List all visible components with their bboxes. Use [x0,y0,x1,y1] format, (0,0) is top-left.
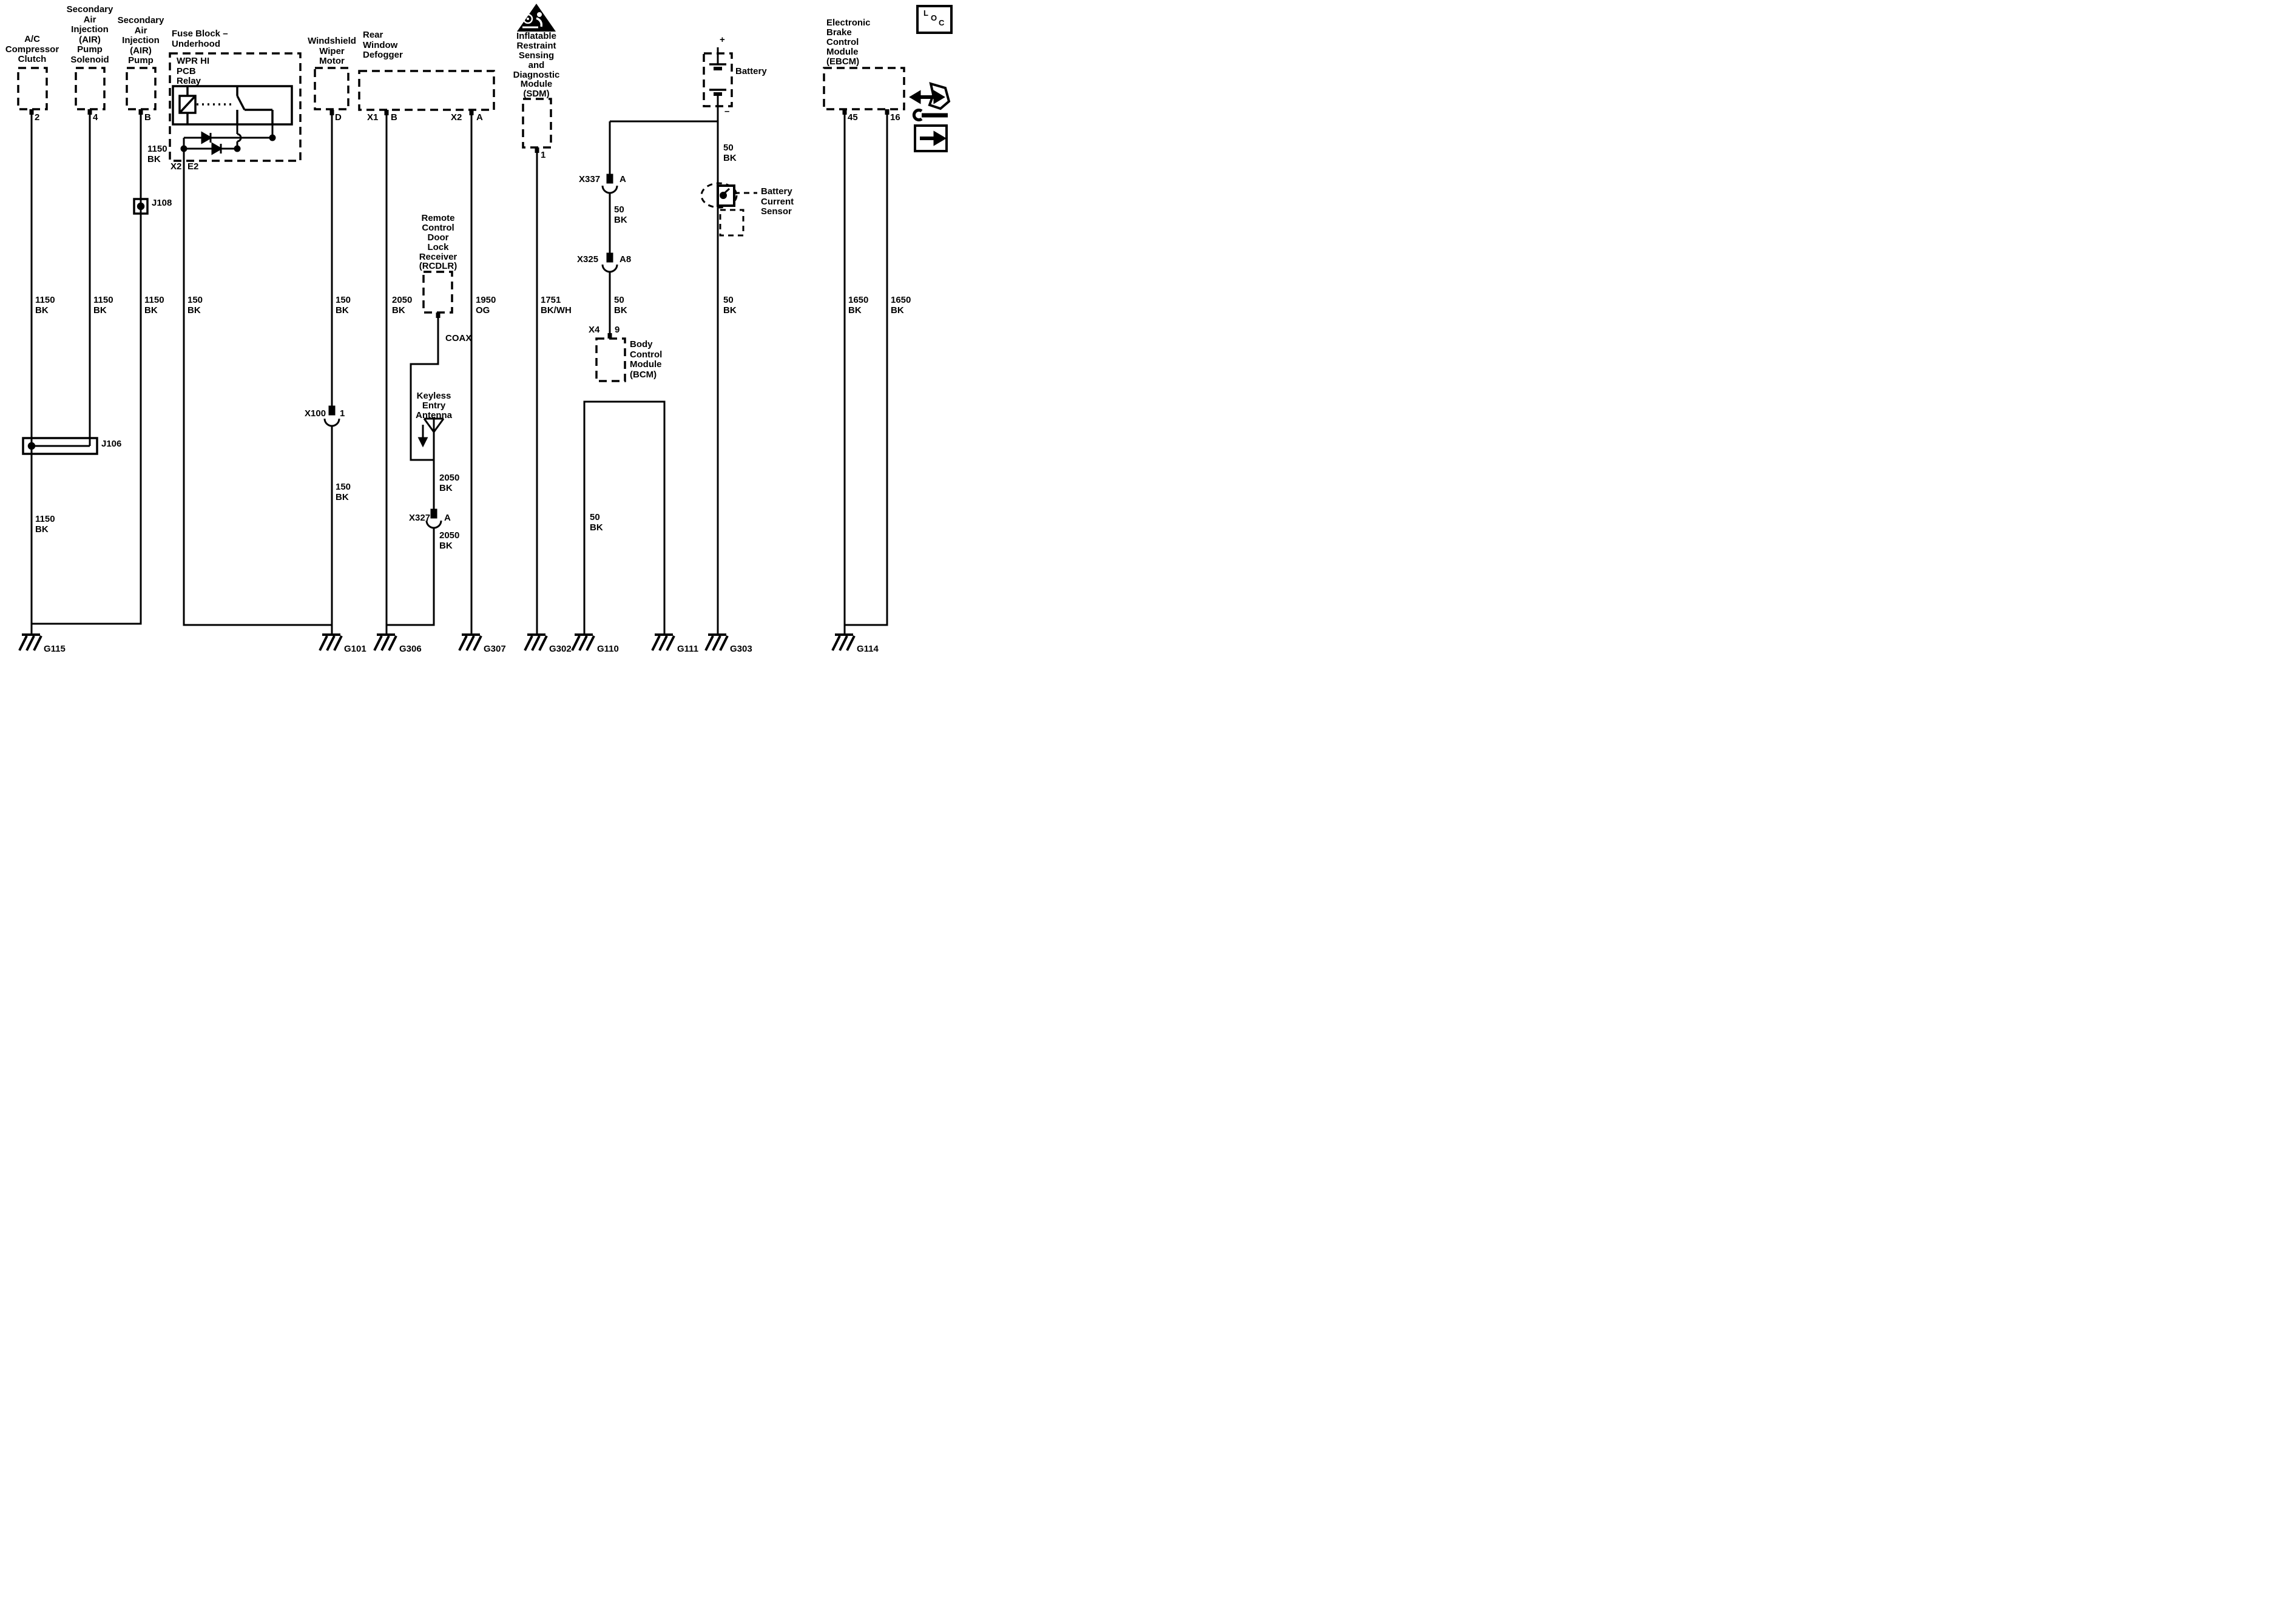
conn-defog-x1: X1 [367,113,378,123]
fuse-block-label: Fuse Block – Underhood [172,29,228,49]
wire-label-acc-1150bk-2: 1150 BK [35,515,55,535]
wire-fuseblock-150bk [184,149,332,625]
ground-label-g302: G302 [549,644,572,655]
wire-label-ant-2050bk: 2050 BK [439,473,459,493]
wire-label-bat-50bk-1: 50 BK [723,143,737,163]
pump-label: Secondary Air Injection (AIR) Pump [110,16,171,66]
box-wiper-motor [315,68,348,109]
ground-icon-g303 [706,635,728,650]
wire-label-bat-50bk-2: 50 BK [723,295,737,316]
wire-label-chain-50bk-2: 50 BK [614,295,627,316]
ground-icon-g114 [832,635,854,650]
connector-x337: X337 [579,175,600,185]
conn-defog-x2: X2 [451,113,462,123]
box-acc-compressor-clutch [18,68,47,109]
conn-fuse-x2: X2 [171,162,181,172]
wire-wiper-150bk [325,110,339,634]
ground-label-g303: G303 [730,644,752,655]
junction-j108-label: J108 [152,198,172,209]
bcm-label: Body Control Module (BCM) [630,340,662,380]
loc-icon: L O C [916,5,953,34]
connector-x100: X100 [305,409,326,419]
conn-bcm-x4: X4 [589,325,599,336]
wire-label-ebcm45-1650bk: 1650 BK [848,295,868,316]
diagram-canvas [0,0,951,670]
wire-label-fuse-150bk: 150 BK [187,295,203,316]
connector-x327: X327 [409,513,430,524]
wire-label-wiper-150bk: 150 BK [336,295,351,316]
ground-icon-g115 [19,635,41,650]
connector-x325: X325 [577,255,598,265]
ground-label-g115: G115 [44,644,66,655]
pin-defog-b: B [391,113,397,123]
pin-fuse-e2: E2 [187,162,198,172]
relay-output-network [181,124,275,154]
junction-j106 [23,438,97,454]
battery-minus: – [724,107,729,117]
acc-label: A/C Compressor Clutch [2,35,62,65]
wire-label-sdm-1751bkwh: 1751 BK/WH [541,295,572,316]
battery-symbol [709,47,726,106]
wire-label-coax: COAX [445,334,471,344]
pin-acc-2: 2 [35,113,39,123]
wire-label-acc-1150bk: 1150 BK [35,295,55,316]
pin-wiper-d: D [335,113,342,123]
pin-pump-b: B [144,113,151,123]
box-air-pump [127,68,155,109]
ground-icon-g111 [652,635,674,650]
box-bcm [596,339,625,381]
ground-icon-g307 [459,635,481,650]
connector-x325-pin: A8 [620,255,631,265]
continuation-arrow-icon [915,126,947,151]
wpr-hi-pcb-relay-symbol [173,86,292,124]
ground-symbols [19,635,854,650]
diode-icon [202,133,221,154]
battery-plus: + [720,35,725,46]
connector-x337-pin: A [620,175,626,185]
pin-defog-a: A [476,113,483,123]
wire-label-pump-1150bk-top: 1150 BK [147,144,167,164]
loc-letter-c: C [939,18,944,27]
junction-j106-label: J106 [101,439,121,450]
wire-label-wiper-150bk-2: 150 BK [336,482,351,502]
box-rcdlr [424,272,452,312]
pin-sol-4: 4 [93,113,98,123]
battery-current-sensor-symbol [701,183,757,235]
ground-label-g114: G114 [857,644,879,655]
sdm-label: Inflatable Restraint Sensing and Diagnos… [506,32,567,99]
battery-label: Battery [735,67,767,77]
connector-x100-pin: 1 [340,409,345,419]
wire-label-chain-50bk-1: 50 BK [614,205,627,225]
pin-ebcm-45: 45 [848,113,858,123]
ground-icon-g302 [525,635,547,650]
box-rear-defogger [359,71,494,110]
ground-icon-g101 [320,635,342,650]
ground-label-g306: G306 [399,644,422,655]
pin-sdm-1: 1 [541,150,545,161]
wire-label-pump-1150bk: 1150 BK [144,295,164,316]
wire-label-ant-2050bk-2: 2050 BK [439,531,459,551]
wire-ebcm-1650bk-16 [845,109,887,625]
loc-letter-l: L [923,8,928,18]
ground-label-g307: G307 [484,644,506,655]
box-sdm [523,99,551,147]
pin-bcm-9: 9 [615,325,620,336]
wiring-diagram-ground-distribution: A/C Compressor Clutch Secondary Air Inje… [0,0,951,670]
wire-label-strap-50bk: 50 BK [590,513,603,533]
antenna-icon [419,419,444,445]
battery-current-sensor-label: Battery Current Sensor [761,187,794,217]
ground-label-g101: G101 [344,644,366,655]
pin-ebcm-16: 16 [890,113,900,123]
airbag-warning-icon [517,4,556,32]
ground-icon-g306 [374,635,396,650]
connector-x327-pin: A [444,513,451,524]
wire-antenna-2050bk [387,432,441,625]
wire-pump-1150bk [32,109,141,624]
service-diagnostics-icon [911,84,949,120]
wire-label-sol-1150bk: 1150 BK [93,295,113,316]
rcdlr-label: Remote Control Door Lock Receiver (RCDLR… [408,214,468,271]
ground-icon-g110 [572,635,594,650]
wire-label-ebcm16-1650bk: 1650 BK [891,295,911,316]
box-ebcm [824,68,904,109]
wpr-relay-label: WPR HI PCB Relay [177,56,209,87]
box-air-pump-solenoid [76,68,104,109]
ebcm-label: Electronic Brake Control Module (EBCM) [826,18,871,66]
keyless-antenna-label: Keyless Entry Antenna [403,391,464,420]
wire-label-defog-1950og: 1950 OG [476,295,496,316]
ground-label-g110: G110 [597,644,619,655]
loc-letter-o: O [931,13,937,22]
defogger-label: Rear Window Defogger [363,30,403,61]
wiper-label: Windshield Wiper Motor [302,36,362,67]
wire-label-defog-2050bk: 2050 BK [392,295,412,316]
ground-label-g111: G111 [677,644,698,655]
